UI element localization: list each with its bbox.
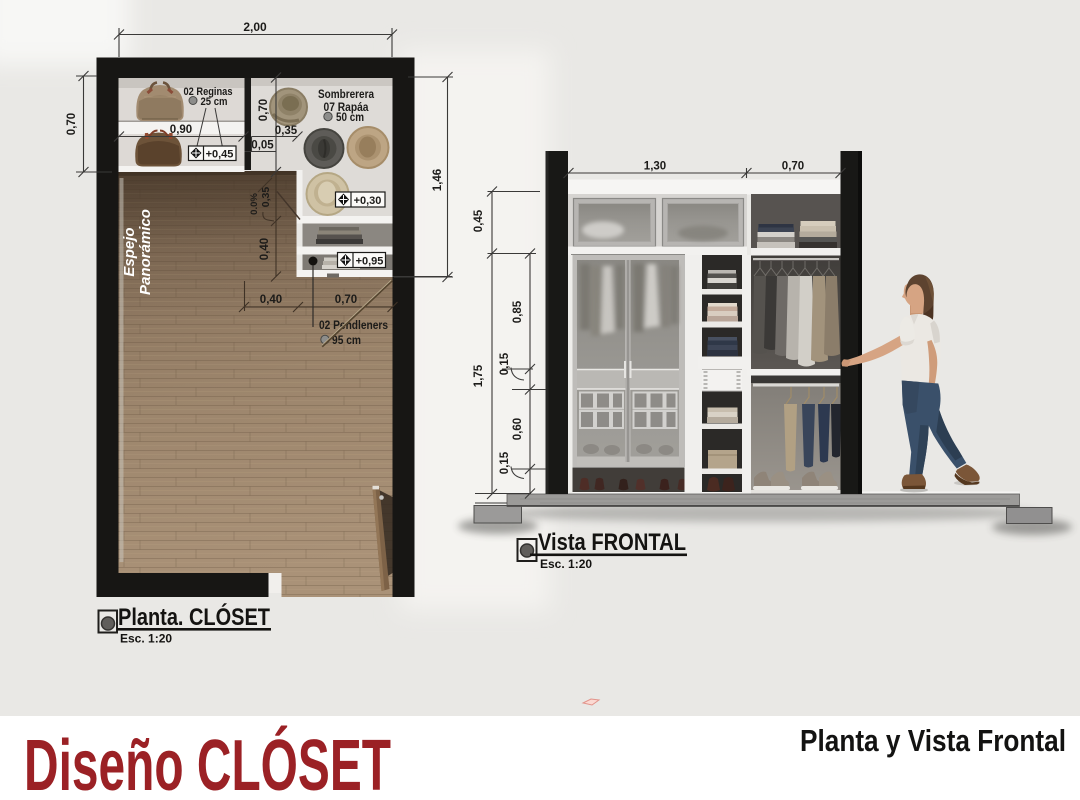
svg-text:0,60: 0,60: [512, 418, 524, 440]
svg-text:0,85: 0,85: [512, 300, 524, 323]
svg-text:Planta y Vista Frontal: Planta y Vista Frontal: [800, 723, 1066, 758]
svg-text:0,40: 0,40: [259, 238, 271, 260]
svg-text:0,40: 0,40: [260, 294, 282, 306]
svg-text:0,70: 0,70: [258, 99, 270, 121]
svg-text:+0,30: +0,30: [354, 195, 382, 207]
svg-text:0.0%: 0.0%: [249, 193, 260, 215]
svg-text:0,90: 0,90: [170, 124, 192, 136]
svg-text:Esc. 1:20: Esc. 1:20: [120, 632, 172, 646]
svg-text:+0,95: +0,95: [356, 256, 384, 268]
svg-text:+0,45: +0,45: [206, 149, 234, 161]
svg-text:Sombrerera: Sombrerera: [318, 89, 375, 101]
svg-text:Vista FRONTAL: Vista FRONTAL: [538, 529, 686, 556]
svg-text:0,45: 0,45: [473, 209, 485, 232]
svg-text:0,15: 0,15: [499, 451, 511, 474]
svg-text:0,05: 0,05: [251, 140, 274, 152]
svg-text:95 cm: 95 cm: [332, 335, 361, 347]
svg-text:Panorámico: Panorámico: [137, 209, 154, 295]
svg-text:Espejo: Espejo: [121, 227, 138, 276]
svg-text:Diseño CLÓSET: Diseño CLÓSET: [24, 725, 391, 800]
svg-text:Esc. 1:20: Esc. 1:20: [540, 557, 592, 571]
svg-text:0,70: 0,70: [66, 113, 78, 135]
svg-text:0,70: 0,70: [782, 161, 804, 173]
svg-text:1,75: 1,75: [473, 364, 485, 387]
svg-text:0,15: 0,15: [499, 352, 511, 375]
svg-text:2,00: 2,00: [243, 20, 267, 34]
svg-text:02 Pendleners: 02 Pendleners: [319, 320, 388, 332]
svg-text:1,30: 1,30: [644, 161, 666, 173]
svg-text:0,35: 0,35: [275, 125, 298, 137]
svg-text:1,46: 1,46: [432, 169, 444, 191]
svg-text:25 cm: 25 cm: [201, 96, 228, 108]
svg-text:50 cm: 50 cm: [336, 112, 364, 124]
svg-text:0,35: 0,35: [260, 187, 272, 208]
svg-text:0,70: 0,70: [335, 294, 357, 306]
svg-text:Planta. CLÓSET: Planta. CLÓSET: [118, 603, 270, 631]
